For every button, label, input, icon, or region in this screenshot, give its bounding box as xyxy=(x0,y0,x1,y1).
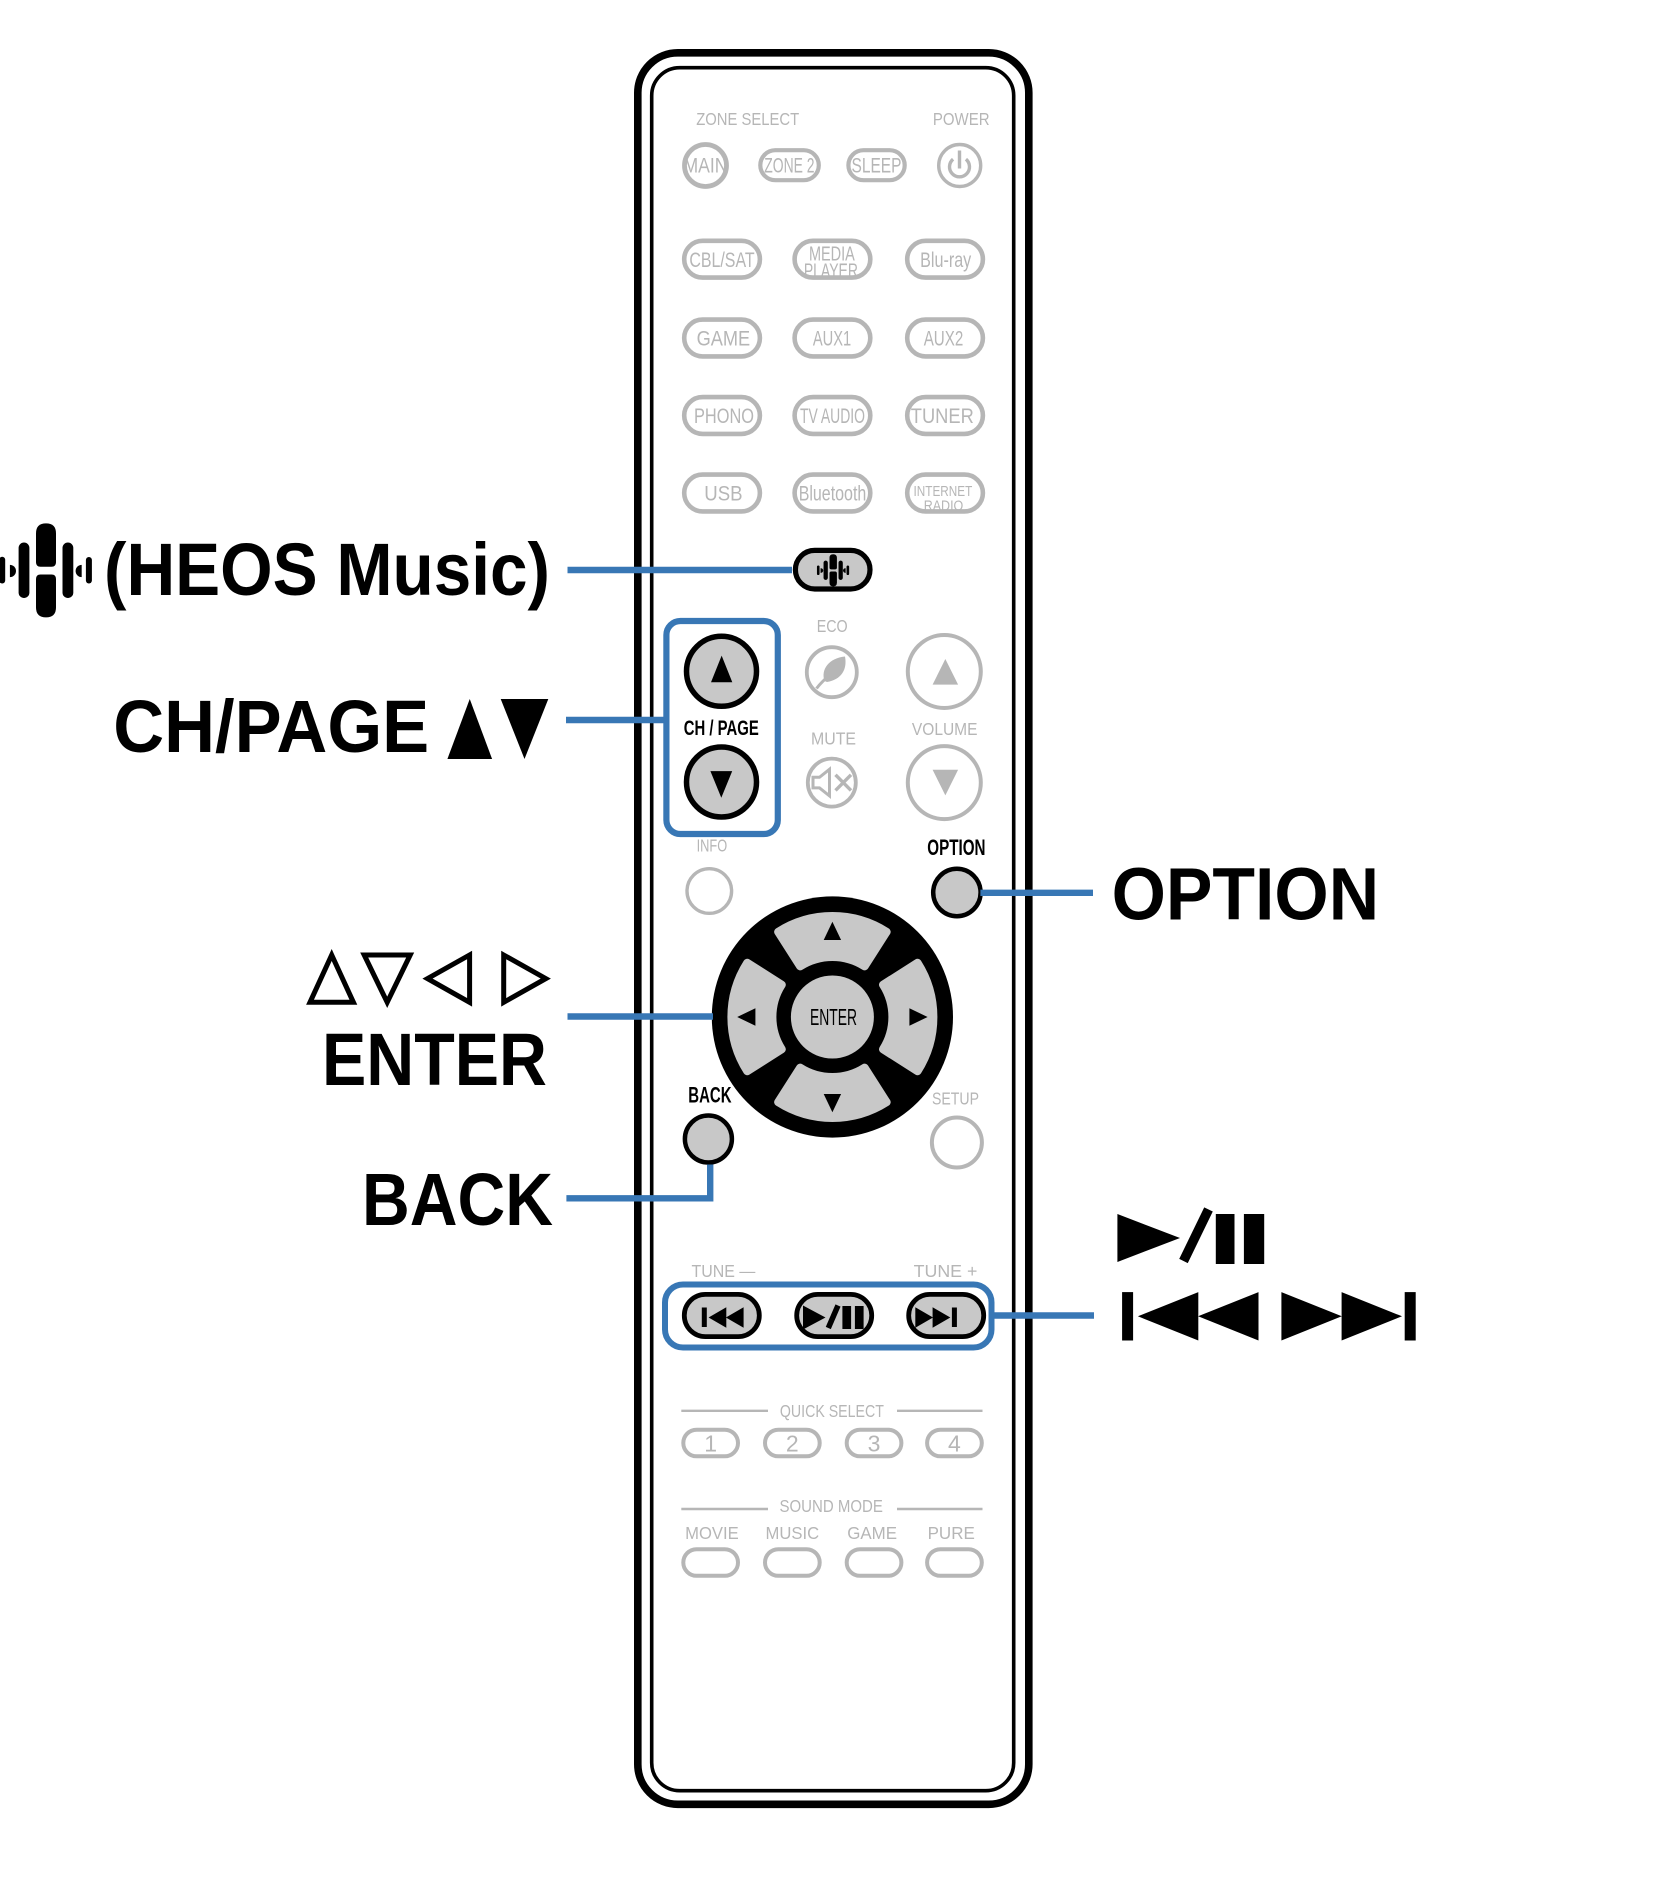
svg-text:CBL/SAT: CBL/SAT xyxy=(689,249,754,272)
svg-text:USB: USB xyxy=(704,483,742,506)
svg-text:AUX2: AUX2 xyxy=(924,328,964,351)
svg-text:BACK: BACK xyxy=(688,1083,731,1108)
svg-text:GAME: GAME xyxy=(697,328,751,351)
svg-text:MOVIE: MOVIE xyxy=(685,1523,739,1543)
svg-text:TUNER: TUNER xyxy=(911,405,974,428)
svg-text:4: 4 xyxy=(948,1431,961,1457)
svg-text:BACK: BACK xyxy=(362,1158,553,1241)
svg-text:MAIN: MAIN xyxy=(684,155,728,178)
svg-text:OPTION: OPTION xyxy=(1112,852,1380,935)
svg-text:OPTION: OPTION xyxy=(927,835,985,860)
svg-text:SETUP: SETUP xyxy=(932,1089,979,1109)
svg-text:ZONE SELECT: ZONE SELECT xyxy=(696,109,799,129)
svg-text:POWER: POWER xyxy=(933,109,990,129)
svg-text:MUTE: MUTE xyxy=(811,729,856,749)
svg-text:PURE: PURE xyxy=(928,1523,975,1543)
svg-text:ENTER: ENTER xyxy=(322,1018,547,1101)
svg-text:ECO: ECO xyxy=(817,616,848,636)
svg-text:CH / PAGE: CH / PAGE xyxy=(684,716,759,740)
svg-text:TUNE —: TUNE — xyxy=(692,1261,756,1281)
svg-text:SLEEP: SLEEP xyxy=(852,155,902,178)
svg-text:INFO: INFO xyxy=(697,835,728,855)
svg-text:SOUND MODE: SOUND MODE xyxy=(780,1496,883,1516)
svg-text:Blu-ray: Blu-ray xyxy=(920,249,971,272)
svg-text:VOLUME: VOLUME xyxy=(912,719,978,739)
svg-text:1: 1 xyxy=(704,1431,717,1457)
svg-text:QUICK SELECT: QUICK SELECT xyxy=(780,1401,884,1421)
svg-text:CH/PAGE: CH/PAGE xyxy=(113,685,429,768)
svg-text:Bluetooth: Bluetooth xyxy=(799,483,867,506)
svg-text:TV AUDIO: TV AUDIO xyxy=(800,405,865,428)
svg-text:PHONO: PHONO xyxy=(694,405,754,428)
svg-text:3: 3 xyxy=(868,1431,881,1457)
svg-text:TUNE +: TUNE + xyxy=(914,1261,978,1281)
svg-text:(HEOS Music): (HEOS Music) xyxy=(104,528,550,611)
svg-text:MUSIC: MUSIC xyxy=(766,1523,820,1543)
svg-text:RADIO: RADIO xyxy=(924,497,964,514)
svg-text:2: 2 xyxy=(786,1431,799,1457)
svg-text:AUX1: AUX1 xyxy=(813,328,851,351)
svg-text:ZONE 2: ZONE 2 xyxy=(764,155,814,178)
svg-text:ENTER: ENTER xyxy=(810,1004,857,1030)
svg-text:PLAYER: PLAYER xyxy=(804,261,858,283)
svg-text:GAME: GAME xyxy=(847,1523,897,1543)
